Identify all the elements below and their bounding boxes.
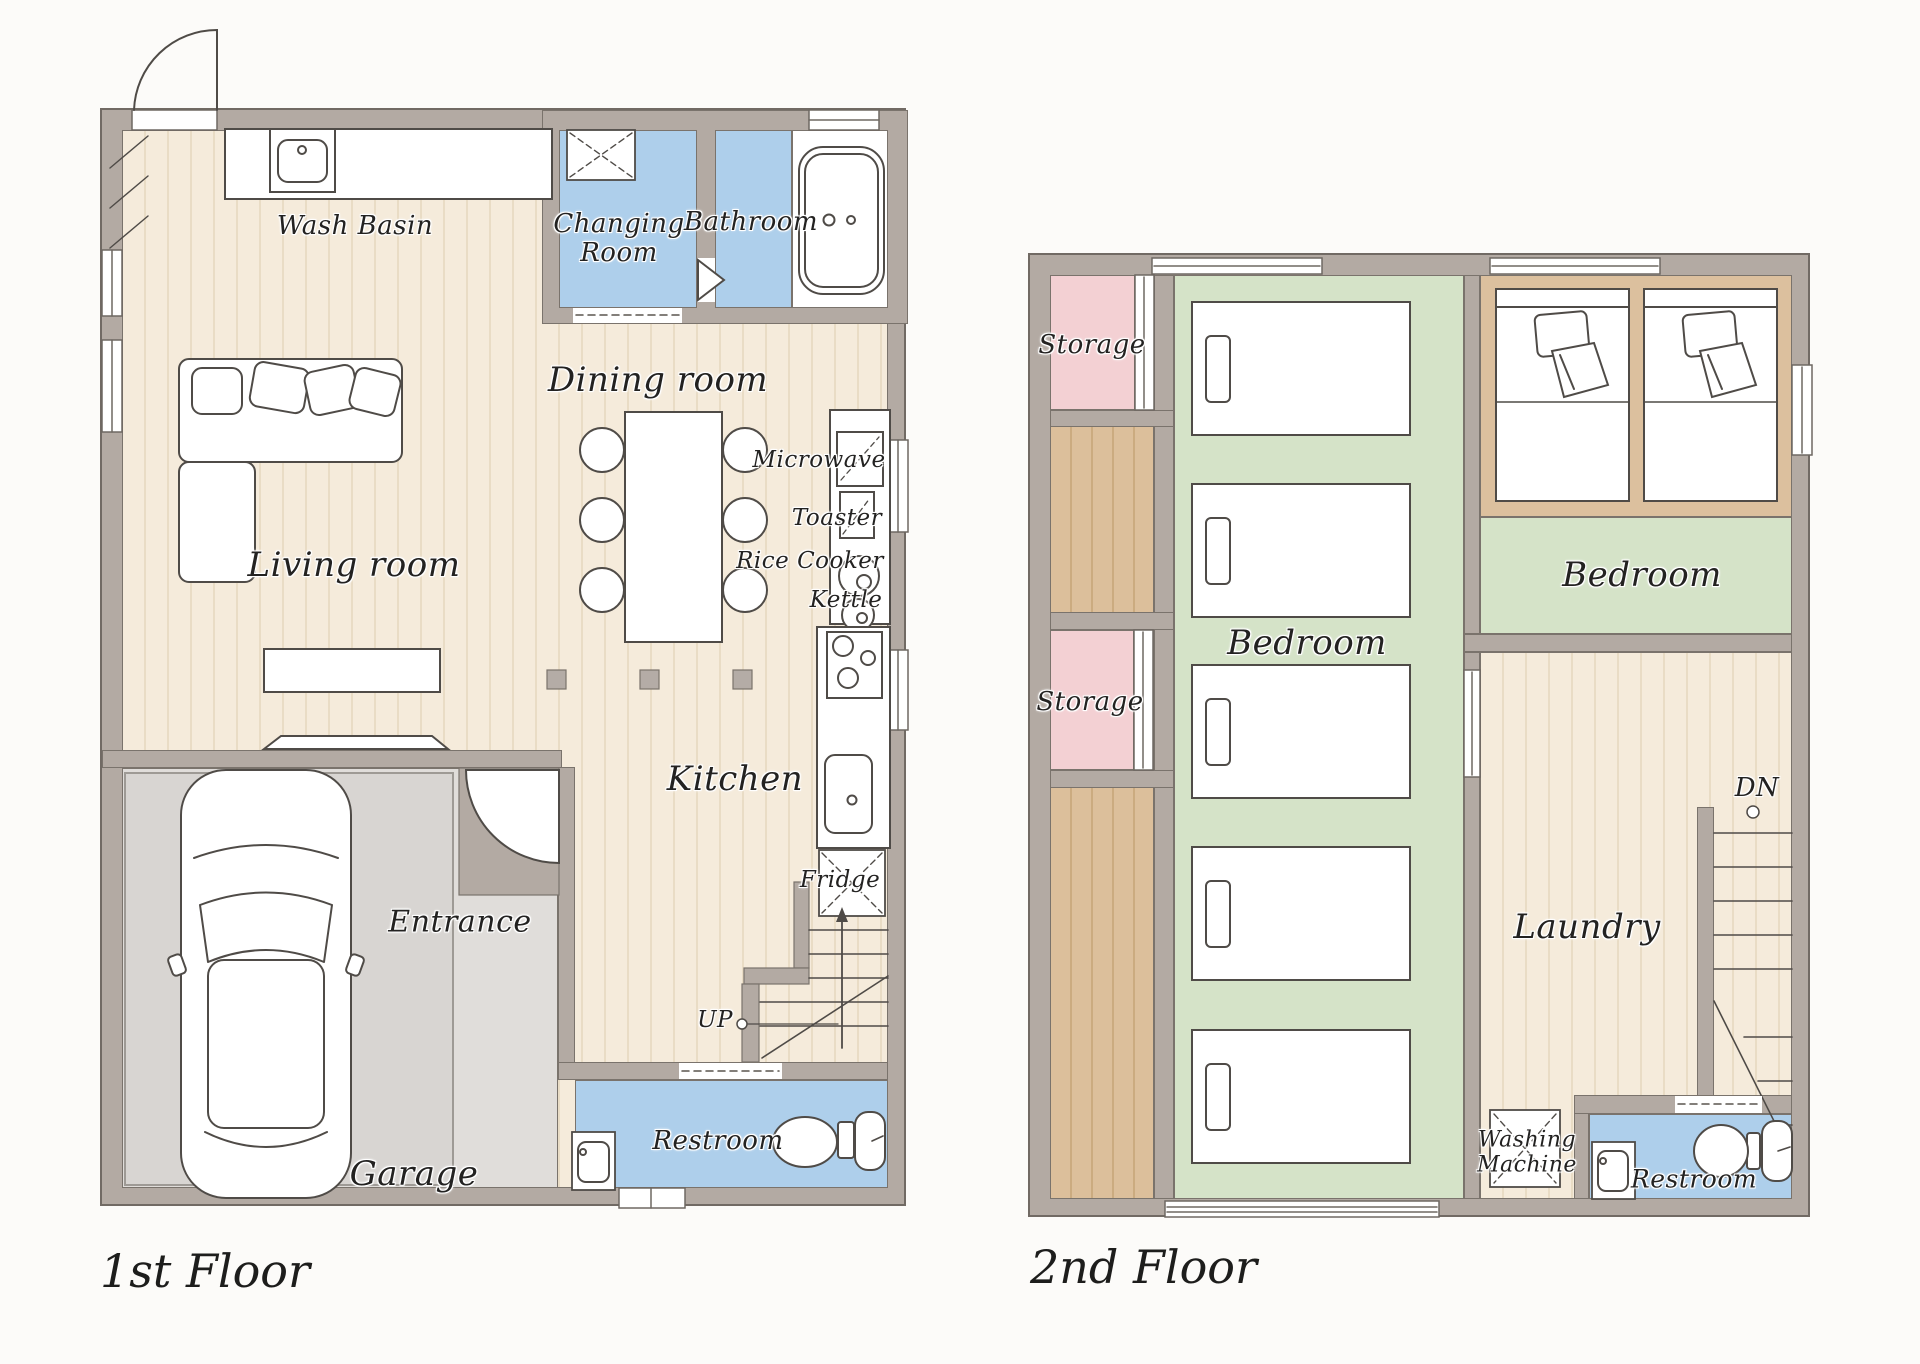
label-microwave: Microwave [752,447,885,473]
laundry-door [1464,670,1480,777]
label-storage-lower: Storage [1036,687,1143,717]
twin-beds [1496,289,1777,501]
label-storage-upper: Storage [1038,330,1145,360]
label-dn: DN [1735,773,1780,803]
dining-set [580,412,767,642]
floor-pillars [547,670,752,689]
label-kitchen: Kitchen [667,759,803,799]
restroom-back-door [619,1188,685,1208]
label-wash-basin: Wash Basin [277,211,433,241]
label-entrance: Entrance [388,905,531,940]
label-up: UP [697,1007,733,1033]
floor-plan-1f: Wash Basin Changing Room Bathroom Dining… [100,108,906,1206]
window-hatch [110,136,148,248]
label-restroom-2f: Restroom [1631,1165,1757,1194]
label-garage: Garage [350,1154,479,1194]
floor1-lineart [102,110,908,1208]
label-restroom-1f: Restroom [652,1126,783,1156]
tv-board [264,649,440,692]
entrance-door-nook [459,768,559,895]
bathroom-door [697,258,724,302]
label-toaster: Toaster [792,505,882,531]
label-fridge: Fridge [800,867,880,893]
tv [264,736,448,749]
kitchen-counter [817,627,890,848]
bathroom-window [809,110,879,130]
washer-box [567,130,635,180]
label-bathroom: Bathroom [684,207,818,237]
floor2-title: 2nd Floor [1030,1240,1257,1294]
entry-door [132,30,217,130]
wash-basin-counter [225,129,552,199]
label-laundry: Laundry [1513,907,1660,947]
sliding-door-restroom-2f [1675,1096,1762,1113]
floor2-lineart [1030,255,1812,1219]
label-kettle: Kettle [810,587,883,613]
beds-main [1192,302,1410,1163]
label-changing-room: Changing Room [553,210,684,268]
sliding-door-changing [573,308,682,323]
label-washing-machine: Washing Machine [1477,1128,1577,1177]
label-living-room: Living room [248,545,461,585]
label-bedroom-twin: Bedroom [1562,555,1722,595]
label-rice-cooker: Rice Cooker [736,548,884,574]
floor1-title: 1st Floor [100,1244,310,1298]
sliding-door-restroom [679,1063,782,1079]
label-bedroom-main: Bedroom [1227,623,1387,663]
car [167,770,365,1198]
floor-plan-2f: Storage Storage Bedroom Bedroom Laundry … [1028,253,1810,1217]
label-dining-room: Dining room [548,360,768,400]
left-windows [102,250,122,432]
